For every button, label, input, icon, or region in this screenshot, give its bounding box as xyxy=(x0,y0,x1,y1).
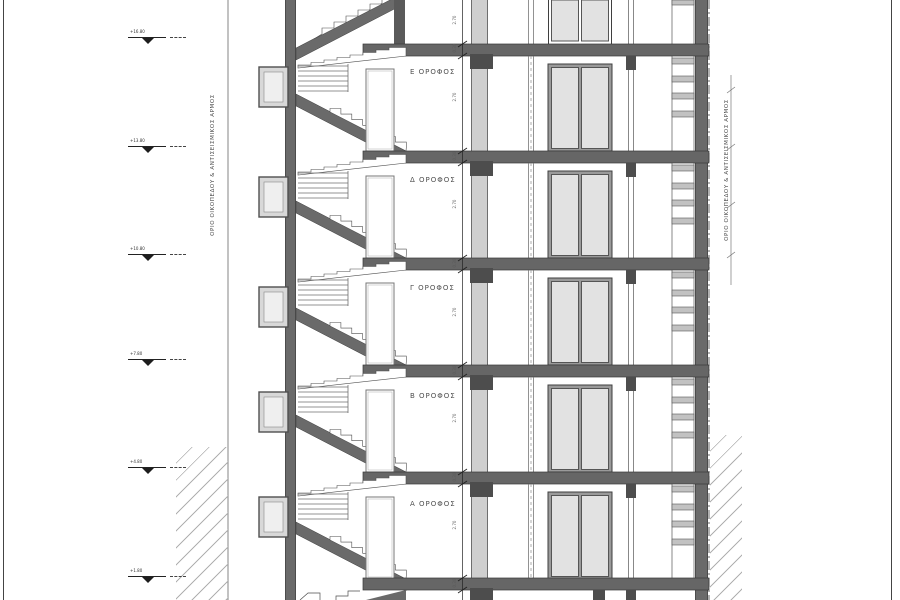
center-dimension-line xyxy=(458,0,467,600)
boundary-label-right: ΟΡΙΟ ΟΙΚΟΠΕΔΟΥ & ΑΝΤΙΣΕΙΣΜΙΚΟΣ ΑΡΜΟΣ xyxy=(724,60,734,280)
elevation-value: +1.80 xyxy=(130,568,142,573)
story-module-d xyxy=(296,151,709,270)
elevation-value: +10.80 xyxy=(130,246,145,251)
level-triangle-icon xyxy=(142,38,154,44)
dim-slab: 0.30 xyxy=(452,572,458,594)
dim-slab: 0.30 xyxy=(452,359,458,381)
level-triangle-icon xyxy=(142,147,154,153)
elevation-marker: +7.80 xyxy=(128,353,188,367)
floor-label-b: Β ΟΡΟΦΟΣ xyxy=(410,392,456,400)
floor-label-c: Γ ΟΡΟΦΟΣ xyxy=(410,284,455,292)
elevation-value: +16.80 xyxy=(130,29,145,34)
dim-story-height: 2.70 xyxy=(452,9,458,31)
elevation-value: +13.80 xyxy=(130,138,145,143)
boundary-label-left: ΟΡΙΟ ΟΙΚΟΠΕΔΟΥ & ΑΝΤΙΣΕΙΣΜΙΚΟΣ ΑΡΜΟΣ xyxy=(210,55,220,275)
dim-story-height: 2.70 xyxy=(452,407,458,429)
section-drawing xyxy=(0,0,900,600)
level-triangle-icon xyxy=(142,577,154,583)
elevation-marker: +1.80 xyxy=(128,570,188,584)
story-module-c xyxy=(296,258,709,377)
level-triangle-icon xyxy=(142,255,154,261)
dim-story-height: 2.70 xyxy=(452,301,458,323)
dim-story-height: 2.70 xyxy=(452,86,458,108)
dim-slab: 0.30 xyxy=(452,252,458,274)
level-triangle-icon xyxy=(142,468,154,474)
story-module-b xyxy=(296,365,709,484)
floor-label-e: Ε ΟΡΟΦΟΣ xyxy=(410,68,455,76)
elevation-value: +7.80 xyxy=(130,351,142,356)
dim-story-height: 2.70 xyxy=(452,514,458,536)
interior-partition-wall xyxy=(628,0,634,600)
interior-column xyxy=(471,0,488,600)
story-module-a xyxy=(296,472,709,591)
bottom-slab xyxy=(363,578,709,600)
floor-label-a: Α ΟΡΟΦΟΣ xyxy=(410,500,456,508)
elevation-marker: +16.80 xyxy=(128,31,188,45)
dim-slab: 0.30 xyxy=(452,145,458,167)
dim-slab: 0.30 xyxy=(452,466,458,488)
floor-label-d: Δ ΟΡΟΦΟΣ xyxy=(410,176,456,184)
dim-slab: 0.30 xyxy=(452,37,458,59)
dim-story-height: 2.70 xyxy=(452,193,458,215)
stair-windows xyxy=(259,67,288,537)
level-triangle-icon xyxy=(142,360,154,366)
elevation-marker: +4.80 xyxy=(128,461,188,475)
architectural-section-sheet: Ε ΟΡΟΦΟΣ Δ ΟΡΟΦΟΣ Γ ΟΡΟΦΟΣ Β ΟΡΟΦΟΣ Α ΟΡ… xyxy=(0,0,900,600)
elevation-value: +4.80 xyxy=(130,459,142,464)
elevation-marker: +13.80 xyxy=(128,140,188,154)
right-wall xyxy=(695,0,708,600)
ground-hatch-right xyxy=(710,435,742,600)
story-module-e xyxy=(296,44,709,163)
elevation-marker: +10.80 xyxy=(128,248,188,262)
